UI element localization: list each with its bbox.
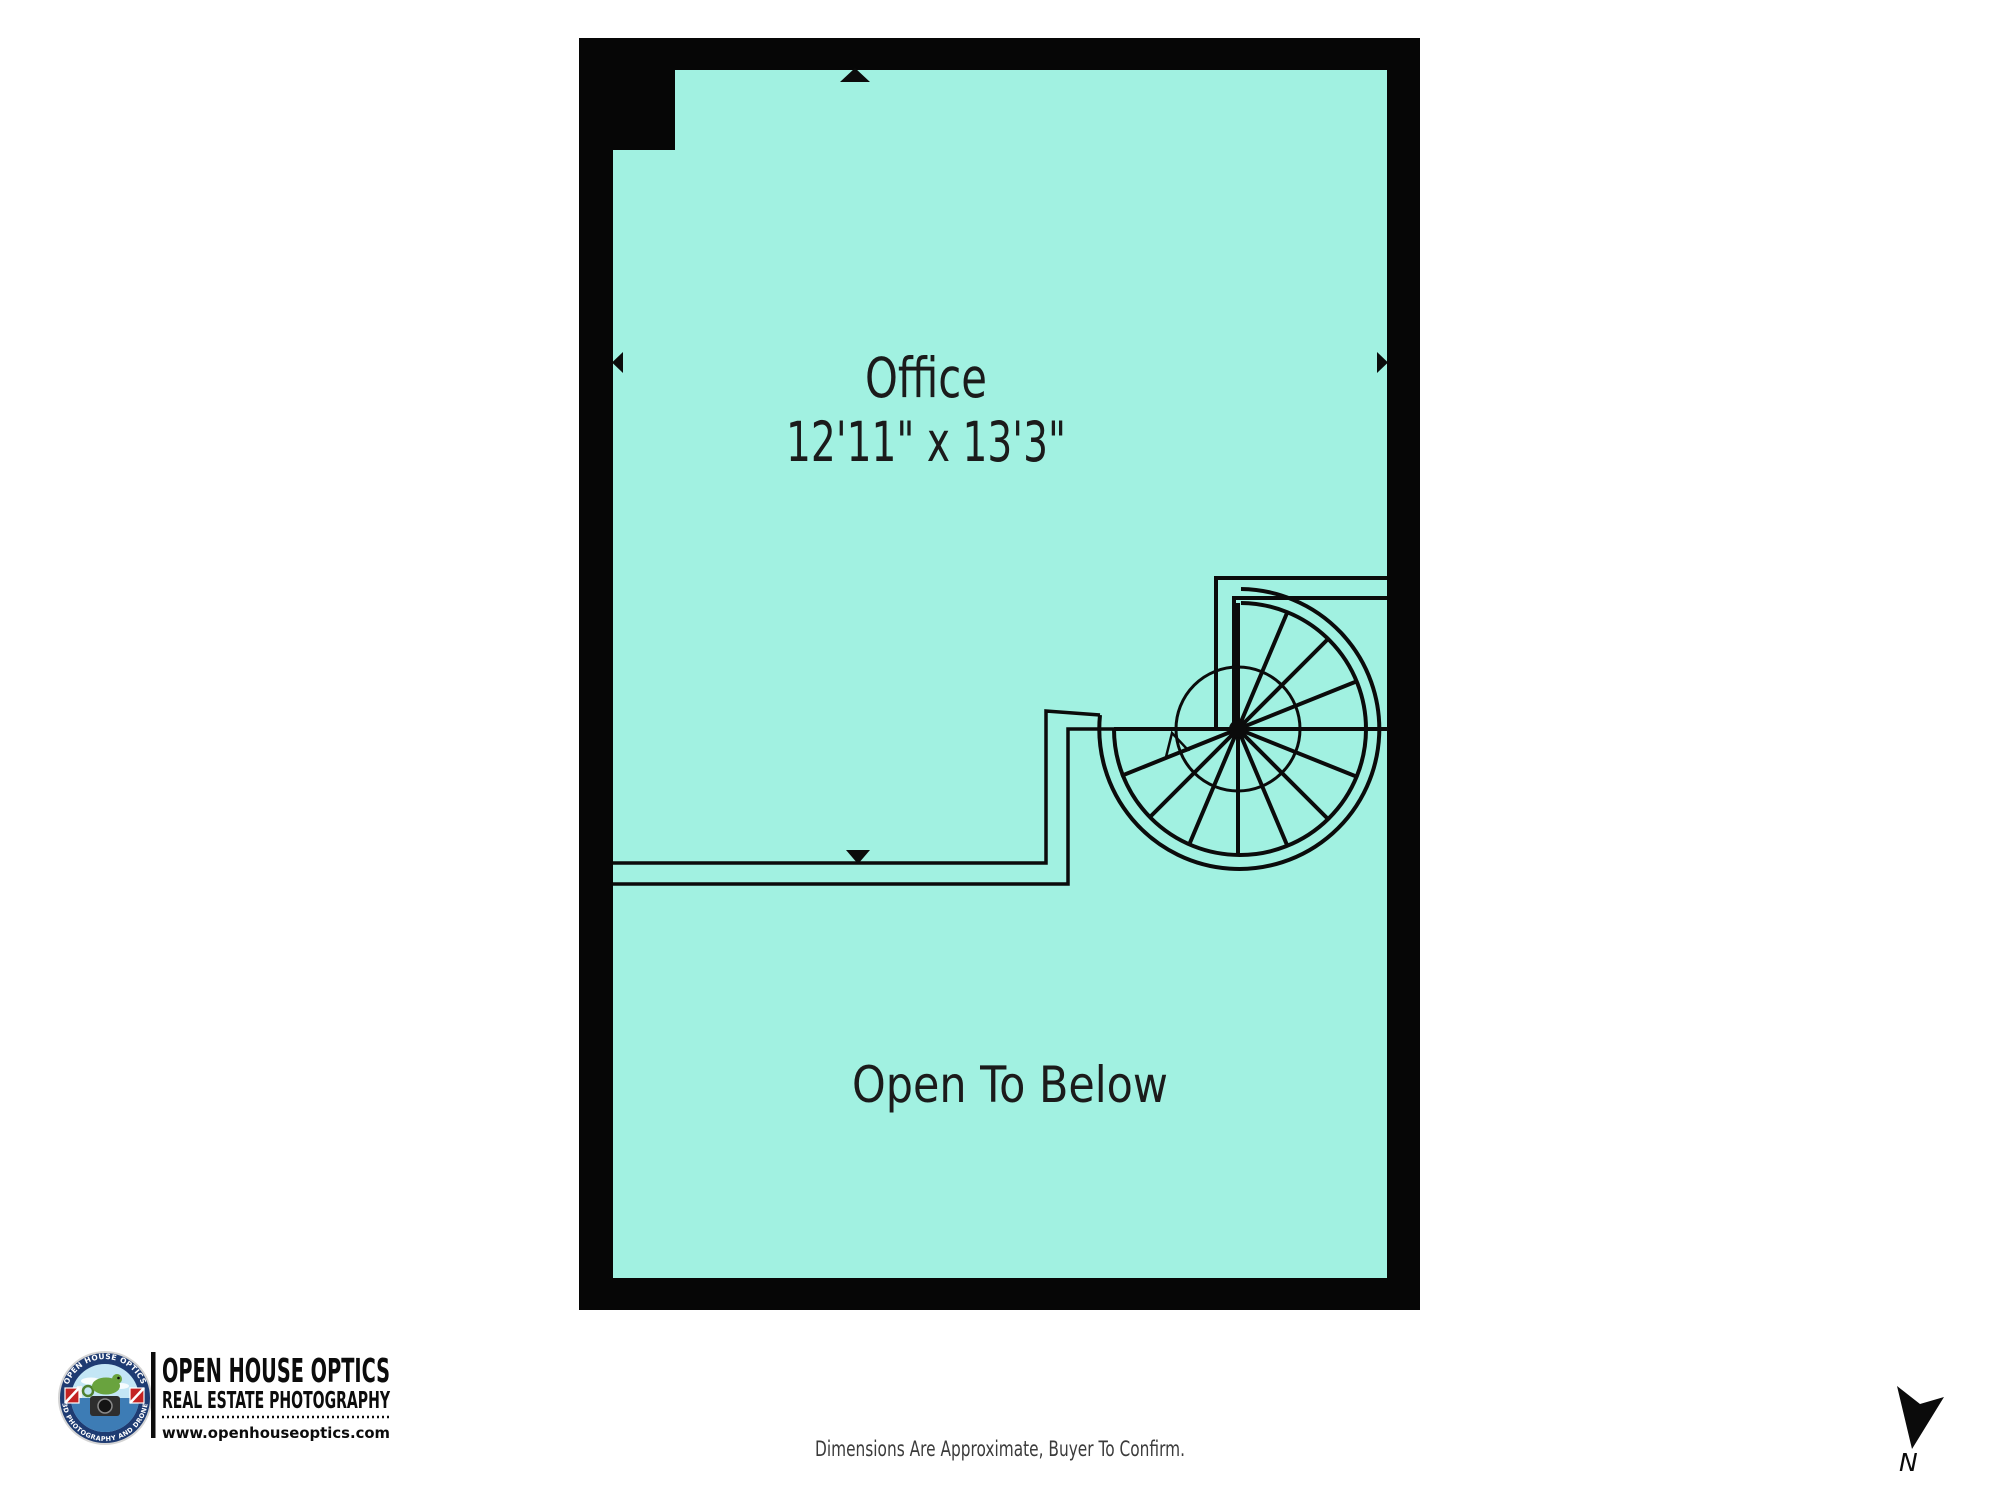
logo-divider [151, 1352, 156, 1438]
logo-website: www.openhouseoptics.com [162, 1424, 390, 1442]
room-dimensions-office: 12'11" x 13'3" [786, 410, 1066, 474]
stair-center-post [1229, 720, 1247, 738]
room-label-open-to-below: Open To Below [852, 1056, 1168, 1114]
disclaimer-text: Dimensions Are Approximate, Buyer To Con… [815, 1437, 1185, 1461]
north-arrow-glyph [1897, 1386, 1944, 1449]
logo-company-name: OPEN HOUSE OPTICS [162, 1351, 390, 1390]
room-label-office: Office [865, 346, 987, 410]
wall-notch [613, 70, 675, 150]
north-label: N [1899, 1448, 1918, 1477]
badge-chameleon-eye [117, 1377, 120, 1380]
logo-tagline: REAL ESTATE PHOTOGRAPHY [162, 1388, 390, 1414]
floor-plan: Office 12'11" x 13'3" Open To Below [579, 38, 1420, 1310]
floorplan-svg: Office 12'11" x 13'3" Open To Below [0, 0, 2000, 1500]
badge-chameleon-head [112, 1374, 122, 1384]
company-logo: OPEN HOUSE OPTICS 3D PHOTOGRAPHY AND DRO… [59, 1351, 390, 1444]
north-arrow-icon: N [1897, 1386, 1944, 1477]
badge-camera-lens [98, 1399, 112, 1413]
floorplan-page: Office 12'11" x 13'3" Open To Below [0, 0, 2000, 1500]
logo-badge-icon: OPEN HOUSE OPTICS 3D PHOTOGRAPHY AND DRO… [59, 1352, 151, 1444]
